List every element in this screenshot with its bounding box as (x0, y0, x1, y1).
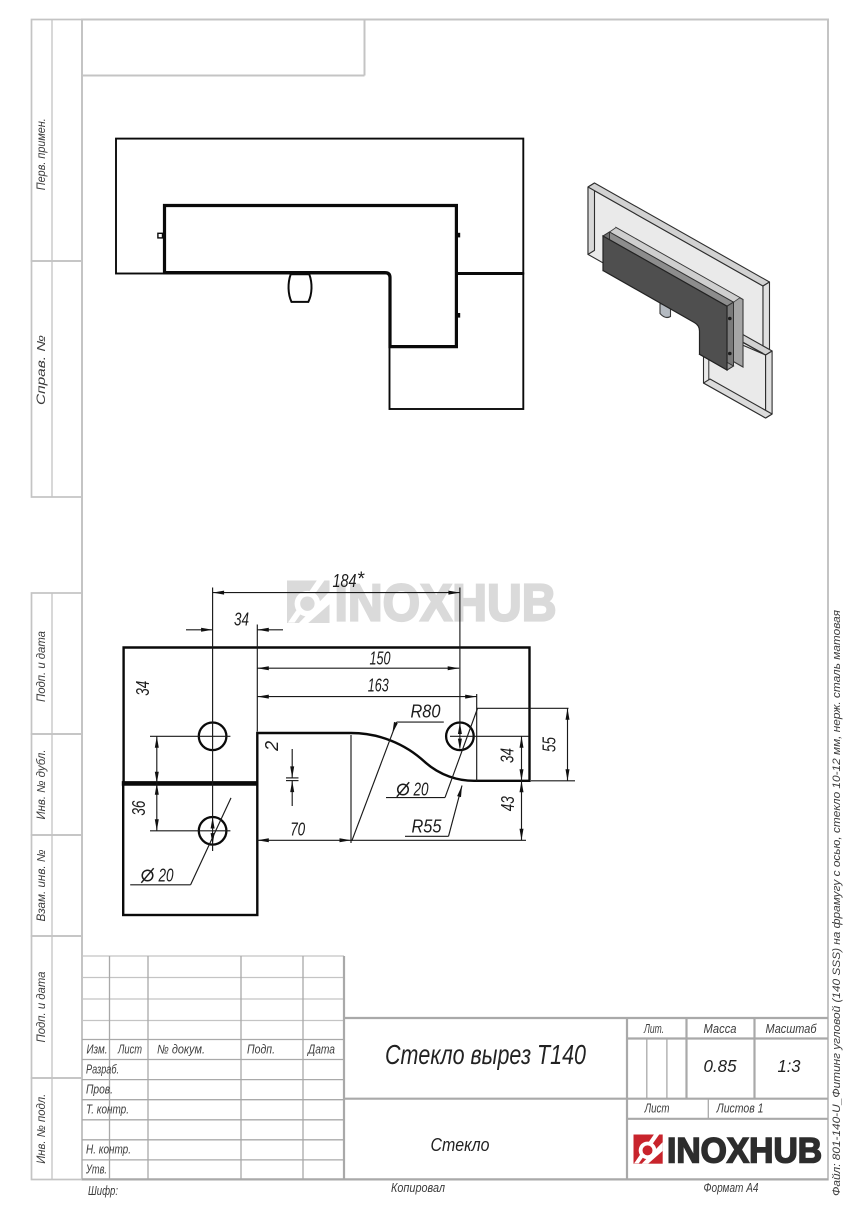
svg-text:Справ. №: Справ. № (36, 334, 48, 405)
svg-text:R55: R55 (412, 817, 443, 837)
svg-text:Копировал: Копировал (391, 1181, 445, 1195)
svg-text:2: 2 (262, 741, 282, 752)
svg-text:36: 36 (129, 800, 149, 816)
svg-text:70: 70 (290, 820, 305, 840)
svg-text:Подп. и дата: Подп. и дата (36, 631, 48, 702)
svg-text:Инв. № подл.: Инв. № подл. (36, 1094, 48, 1164)
svg-text:Стекло: Стекло (431, 1134, 490, 1155)
svg-text:Перв. примен.: Перв. примен. (36, 118, 48, 190)
svg-text:Файл: 801-140-U_Фитинг угловой: Файл: 801-140-U_Фитинг угловой (140 SSS)… (831, 610, 843, 1196)
svg-text:184: 184 (333, 571, 357, 591)
svg-text:Утв.: Утв. (85, 1163, 107, 1177)
svg-text:Инв. № дубл.: Инв. № дубл. (36, 750, 48, 820)
svg-text:Разраб.: Разраб. (86, 1063, 119, 1077)
svg-text:55: 55 (540, 736, 560, 752)
svg-text:163: 163 (368, 676, 389, 696)
svg-text:Изм.: Изм. (87, 1043, 108, 1057)
svg-text:№ докум.: № докум. (157, 1043, 205, 1057)
svg-text:Стекло вырез Т140: Стекло вырез Т140 (385, 1039, 586, 1070)
svg-text:34: 34 (498, 748, 518, 763)
svg-text:34: 34 (133, 681, 153, 696)
svg-text:Листов 1: Листов 1 (716, 1102, 764, 1116)
svg-text:Пров.: Пров. (86, 1083, 113, 1097)
svg-text:150: 150 (370, 649, 391, 669)
svg-text:INOXHUB: INOXHUB (667, 1132, 822, 1171)
svg-text:Масштаб: Масштаб (766, 1022, 818, 1036)
svg-text:*: * (357, 569, 365, 590)
svg-text:Н. контр.: Н. контр. (86, 1143, 131, 1157)
svg-text:Лит.: Лит. (643, 1022, 664, 1036)
svg-text:1:3: 1:3 (778, 1056, 801, 1076)
svg-text:Т. контр.: Т. контр. (86, 1103, 129, 1117)
svg-text:Шифр:: Шифр: (88, 1184, 118, 1198)
svg-text:Лист: Лист (117, 1043, 142, 1057)
svg-text:INOXHUB: INOXHUB (335, 575, 557, 633)
svg-text:20: 20 (413, 780, 429, 800)
svg-text:Взам. инв. №: Взам. инв. № (36, 849, 48, 922)
svg-text:Подп.: Подп. (247, 1043, 275, 1057)
svg-text:Лист: Лист (644, 1102, 670, 1116)
svg-text:43: 43 (498, 796, 518, 811)
svg-text:Масса: Масса (704, 1022, 737, 1036)
svg-text:R80: R80 (411, 702, 441, 722)
svg-text:Подп. и дата: Подп. и дата (36, 972, 48, 1043)
svg-text:Дата: Дата (306, 1043, 335, 1057)
svg-text:20: 20 (158, 866, 174, 886)
svg-text:34: 34 (234, 610, 249, 630)
svg-text:Формат А4: Формат А4 (704, 1181, 759, 1195)
svg-text:0.85: 0.85 (704, 1056, 737, 1076)
